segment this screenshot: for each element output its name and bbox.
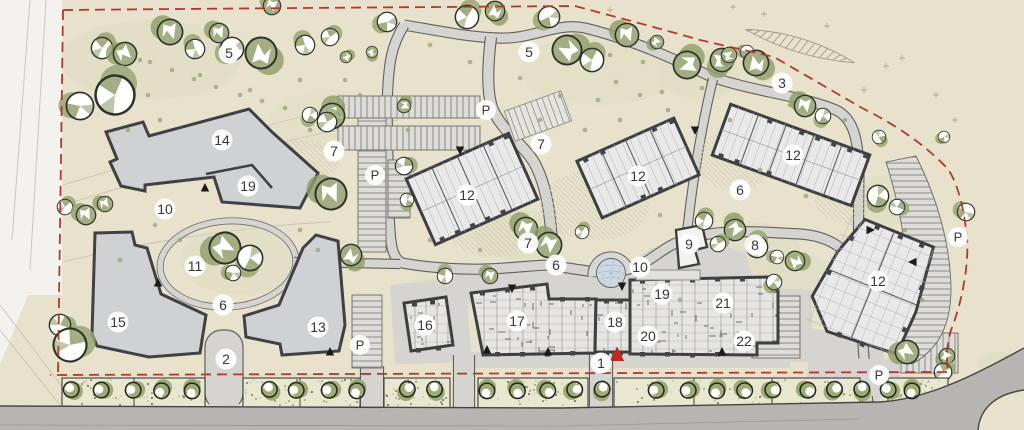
svg-text:7: 7 bbox=[330, 143, 338, 159]
svg-text:19: 19 bbox=[240, 178, 256, 194]
svg-text:13: 13 bbox=[310, 319, 326, 335]
svg-text:9: 9 bbox=[685, 236, 693, 252]
svg-text:7: 7 bbox=[524, 235, 532, 251]
svg-text:22: 22 bbox=[736, 333, 752, 349]
svg-text:P: P bbox=[371, 167, 380, 182]
svg-text:19: 19 bbox=[654, 286, 670, 302]
svg-text:18: 18 bbox=[607, 314, 623, 330]
svg-text:14: 14 bbox=[214, 132, 230, 148]
svg-text:12: 12 bbox=[870, 273, 886, 289]
svg-text:21: 21 bbox=[715, 295, 731, 311]
svg-text:5: 5 bbox=[225, 45, 233, 61]
svg-text:6: 6 bbox=[219, 297, 227, 313]
svg-text:16: 16 bbox=[417, 317, 433, 333]
svg-text:1: 1 bbox=[597, 355, 605, 371]
svg-text:P: P bbox=[875, 367, 884, 382]
svg-text:17: 17 bbox=[509, 313, 525, 329]
svg-text:2: 2 bbox=[222, 351, 230, 367]
svg-text:10: 10 bbox=[632, 259, 648, 275]
svg-text:6: 6 bbox=[552, 257, 560, 273]
svg-text:3: 3 bbox=[778, 75, 786, 91]
svg-text:P: P bbox=[482, 102, 491, 117]
svg-text:6: 6 bbox=[736, 182, 744, 198]
svg-text:7: 7 bbox=[537, 136, 545, 152]
svg-text:12: 12 bbox=[785, 147, 801, 163]
svg-text:12: 12 bbox=[630, 168, 646, 184]
svg-text:12: 12 bbox=[459, 187, 475, 203]
svg-text:P: P bbox=[356, 337, 365, 352]
svg-text:10: 10 bbox=[157, 201, 173, 217]
svg-text:15: 15 bbox=[110, 314, 126, 330]
svg-text:11: 11 bbox=[188, 258, 203, 274]
svg-text:5: 5 bbox=[525, 44, 533, 60]
svg-text:8: 8 bbox=[751, 237, 759, 253]
svg-text:P: P bbox=[954, 229, 963, 244]
svg-text:20: 20 bbox=[640, 328, 656, 344]
